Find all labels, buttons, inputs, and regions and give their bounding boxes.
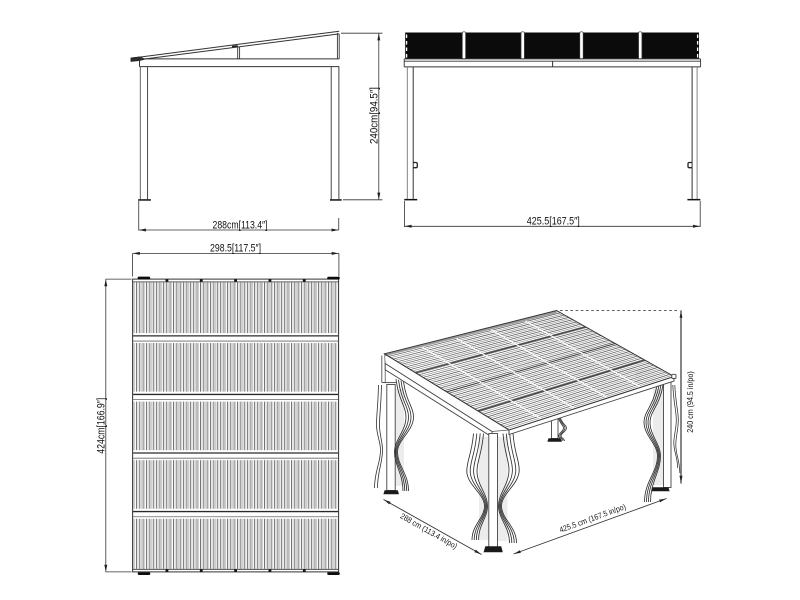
svg-text:425.5[167.5″]: 425.5[167.5″] bbox=[527, 216, 580, 228]
svg-text:240cm[94.5″]: 240cm[94.5″] bbox=[369, 87, 381, 144]
svg-text:424cm[166.9″]: 424cm[166.9″] bbox=[96, 398, 108, 454]
svg-text:240 cm (94.5 in/po): 240 cm (94.5 in/po) bbox=[686, 371, 695, 433]
svg-text:288cm[113.4″]: 288cm[113.4″] bbox=[213, 219, 268, 231]
svg-text:298.5[117.5″]: 298.5[117.5″] bbox=[210, 242, 261, 254]
